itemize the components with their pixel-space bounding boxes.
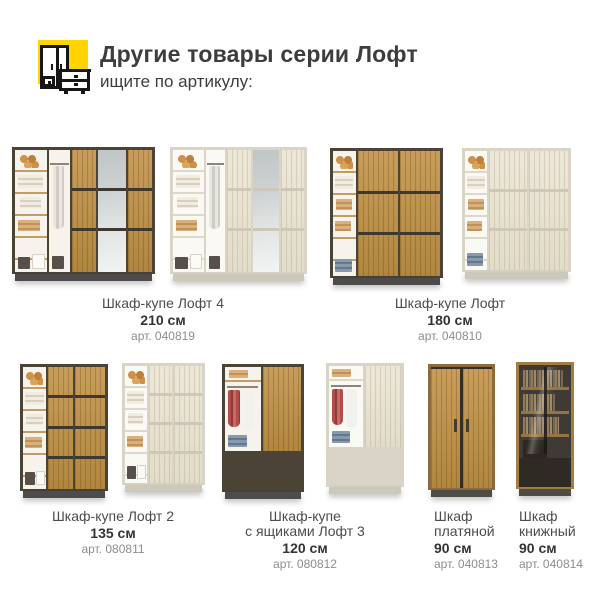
linen-stack	[177, 197, 198, 208]
plinth-base	[173, 274, 304, 281]
towel-stack	[335, 221, 351, 231]
hanging-clothes	[228, 390, 240, 427]
product-card-loft: Шкаф-купе Лофт 180 см арт. 040810	[370, 296, 530, 343]
product-size: 90 см	[519, 541, 600, 556]
wood-door	[358, 151, 398, 276]
drawer-row	[329, 449, 401, 485]
door-handle	[466, 419, 469, 432]
basket-rolls	[335, 155, 353, 169]
page-title: Другие товары серии Лофт	[100, 41, 418, 68]
product-card-loft3: Шкаф-купе с ящиками Лофт 3 120 см арт. 0…	[225, 509, 385, 571]
product-image-loft-light	[462, 148, 571, 279]
wardrobe-body	[170, 147, 307, 274]
open-shelves	[333, 151, 356, 276]
hanging-section	[49, 150, 70, 272]
page-subtitle: ищите по артикулу:	[100, 72, 418, 92]
linen-stack	[335, 176, 353, 189]
product-name: Шкаф-купе Лофт 4	[83, 296, 243, 311]
wood-door	[281, 150, 304, 272]
wood-door	[174, 366, 202, 483]
glass-overlay	[521, 367, 569, 454]
dresser-icon	[59, 69, 90, 91]
product-image-knizhny	[516, 362, 574, 496]
towel-stack	[18, 220, 40, 231]
hanging-clothes	[209, 166, 220, 229]
wood-door	[149, 366, 172, 483]
linen-stack	[20, 197, 42, 208]
hanging-clothes	[53, 166, 64, 229]
plinth-base	[465, 272, 568, 279]
dark-bag	[127, 466, 136, 479]
product-size: 120 см	[225, 541, 385, 556]
basket-rolls	[127, 370, 145, 384]
wood-door	[365, 366, 401, 447]
product-image-loft2-dark	[20, 364, 108, 498]
plinth-base	[519, 489, 571, 496]
dark-bag	[25, 472, 35, 485]
plinth-base	[225, 492, 301, 499]
product-article: арт. 040814	[519, 558, 600, 571]
towel-stack	[336, 199, 353, 210]
linen-stack	[25, 392, 43, 405]
plinth-base	[333, 278, 440, 285]
hanging-clothes	[346, 389, 357, 428]
linen-stack	[467, 253, 483, 266]
basket-rolls	[25, 371, 43, 385]
dark-bag	[52, 256, 63, 269]
shelf-items	[229, 370, 249, 378]
open-shelves	[125, 366, 147, 483]
towel-stack	[127, 436, 143, 447]
wood-door	[489, 151, 528, 270]
linen-stack	[335, 259, 351, 272]
wood-door	[128, 150, 153, 272]
storage-box	[137, 465, 145, 479]
basket-rolls	[467, 155, 485, 169]
hanging-clothes	[332, 389, 343, 425]
wood-door	[463, 369, 492, 488]
product-article: арт. 080812	[225, 558, 385, 571]
mirror-door	[253, 150, 279, 272]
dark-bag	[209, 256, 220, 269]
plinth-base	[125, 485, 202, 492]
product-article: арт. 080811	[33, 543, 193, 556]
wardrobe-body	[462, 148, 571, 272]
towel-stack	[468, 199, 484, 210]
catalog-page: Другие товары серии Лофт ищите по артику…	[0, 0, 600, 600]
wardrobe-body	[20, 364, 108, 491]
jeans-stack	[332, 431, 350, 443]
product-image-loft3-dark	[222, 364, 304, 499]
product-card-loft2: Шкаф-купе Лофт 2 135 см арт. 080811	[33, 509, 193, 556]
product-image-loft4-dark	[12, 147, 155, 281]
towel-stack	[176, 220, 197, 231]
plinth-base	[431, 490, 492, 497]
open-shelves	[173, 150, 204, 272]
wardrobe-body	[330, 148, 443, 278]
product-article: арт. 040819	[83, 330, 243, 343]
product-image-loft3-light	[326, 363, 404, 494]
product-size: 135 см	[33, 526, 193, 541]
wood-door	[529, 151, 568, 270]
product-image-loft-dark	[330, 148, 443, 285]
product-name: Шкаф книжный	[519, 509, 600, 539]
linen-stack	[128, 413, 144, 424]
product-card-knizhny: Шкаф книжный 90 см арт. 040814	[519, 509, 600, 571]
storage-box	[190, 254, 202, 269]
wood-door	[227, 150, 250, 272]
product-article: арт. 040810	[370, 330, 530, 343]
cupboard-doors	[519, 458, 571, 487]
plinth-base	[15, 274, 152, 281]
product-image-loft4-light	[170, 147, 307, 281]
open-shelves	[465, 151, 487, 270]
product-name: Шкаф-купе с ящиками Лофт 3	[225, 509, 385, 539]
dark-bag	[18, 257, 31, 269]
plinth-base	[329, 487, 401, 494]
wardrobe-body	[122, 363, 205, 485]
dark-bag	[175, 257, 187, 269]
plinth-base	[23, 491, 105, 498]
hanging-section	[206, 150, 226, 272]
linen-stack	[127, 391, 144, 404]
wardrobe-body	[326, 363, 404, 487]
wood-door	[263, 367, 301, 451]
wood-door	[75, 367, 105, 489]
product-name: Шкаф-купе Лофт	[370, 296, 530, 311]
towel-stack	[25, 437, 42, 448]
product-size: 210 см	[83, 313, 243, 328]
storage-box	[32, 254, 45, 269]
door-handle	[454, 419, 457, 432]
basket-rolls	[19, 154, 39, 168]
product-size: 180 см	[370, 313, 530, 328]
wood-door	[400, 151, 440, 276]
wardrobe-body	[12, 147, 155, 274]
linen-stack	[176, 175, 200, 188]
wood-door	[72, 150, 97, 272]
towel-stack	[467, 221, 482, 231]
product-card-loft4: Шкаф-купе Лофт 4 210 см арт. 040819	[83, 296, 243, 343]
product-image-loft2-light	[122, 363, 205, 492]
linen-stack	[467, 176, 484, 189]
open-shelves	[15, 150, 47, 272]
jeans-stack	[228, 435, 248, 447]
drawer-row	[225, 453, 301, 490]
product-image-platyanoy	[428, 364, 495, 497]
hanging-section	[225, 367, 261, 451]
hanging-section	[329, 366, 363, 447]
wood-door	[431, 369, 460, 488]
hanging-clothes	[243, 390, 254, 430]
wardrobe-body	[428, 364, 495, 490]
linen-stack	[18, 175, 43, 188]
wardrobe-body	[222, 364, 304, 492]
product-name: Шкаф-купе Лофт 2	[33, 509, 193, 524]
storage-box	[36, 471, 45, 485]
shelf-items	[332, 369, 350, 377]
bookcase-body	[516, 362, 574, 489]
wood-door	[48, 367, 73, 489]
mirror-door	[98, 150, 125, 272]
series-logo	[35, 37, 93, 95]
linen-stack	[26, 414, 43, 425]
open-shelves	[23, 367, 46, 489]
basket-rolls	[177, 154, 197, 168]
